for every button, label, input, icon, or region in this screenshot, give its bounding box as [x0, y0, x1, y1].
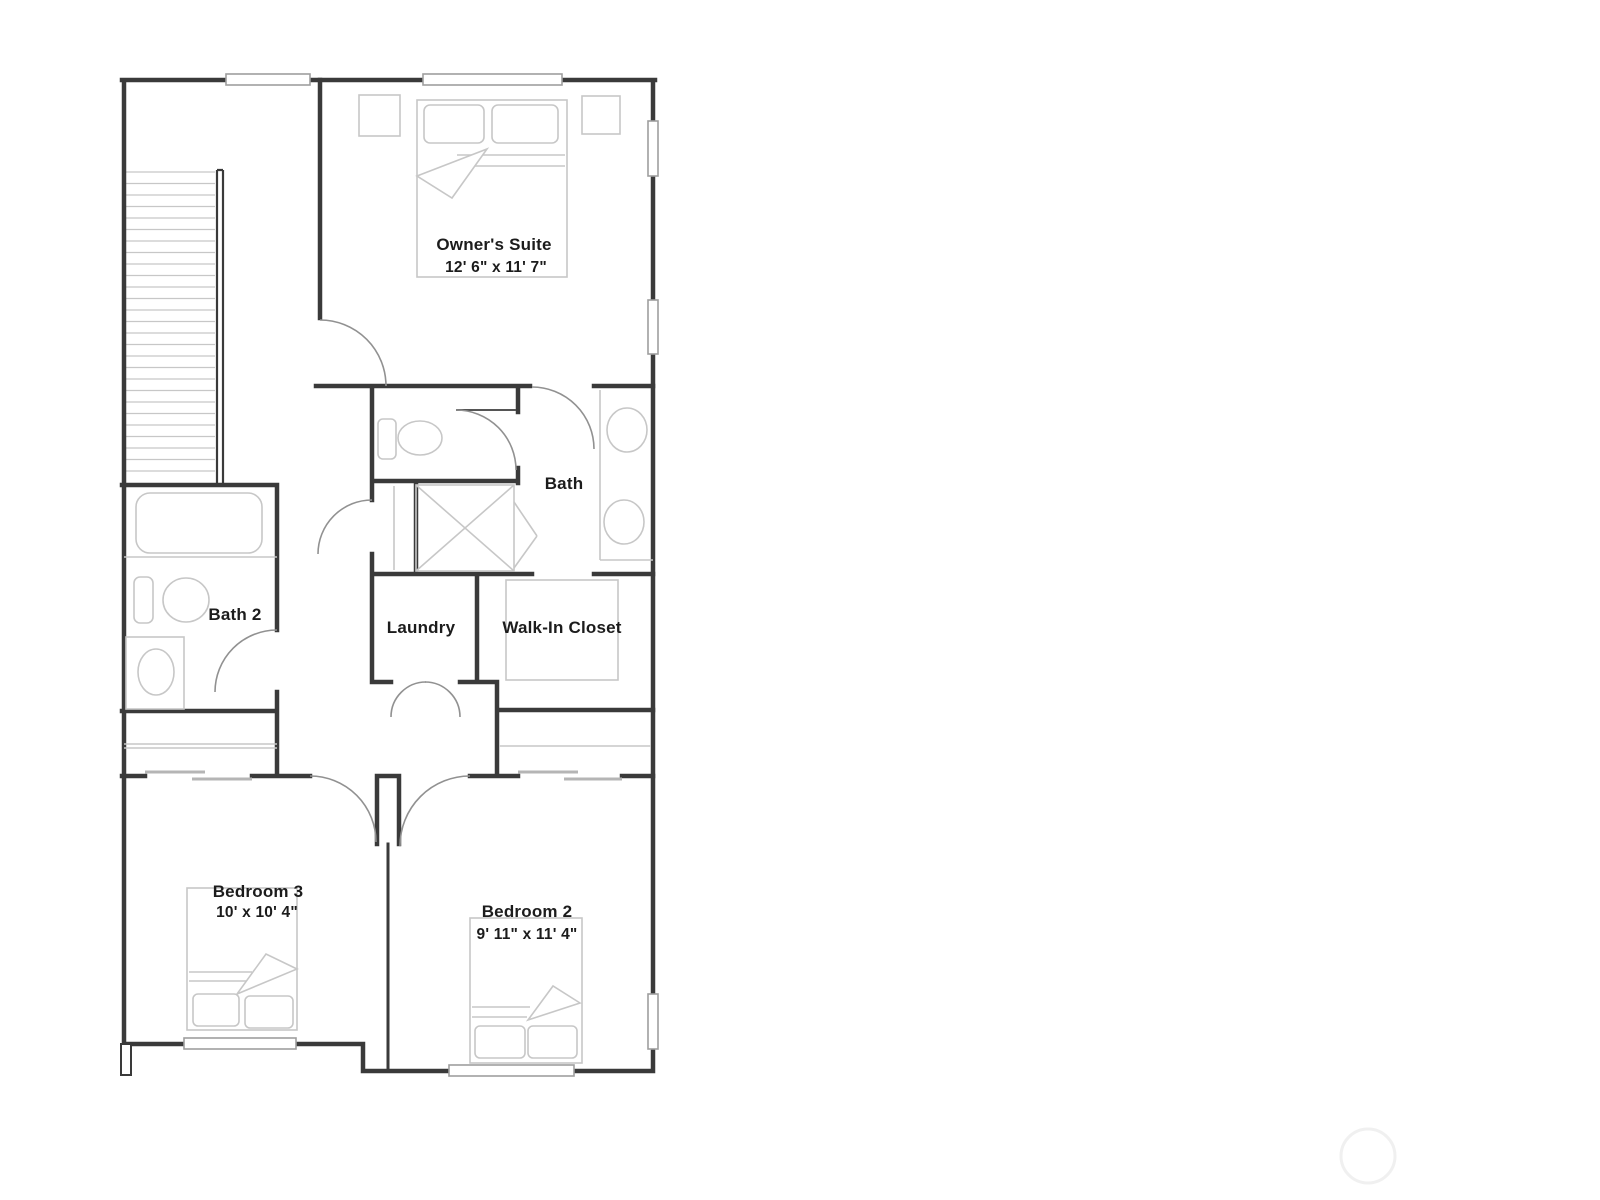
stairs: [126, 170, 223, 485]
bed-sheet-fold: [417, 149, 487, 198]
laundry-door-right-arc: [425, 682, 460, 717]
room-label-bedroom-3: Bedroom 3: [213, 882, 304, 901]
stair-treads: [126, 172, 215, 471]
room-dims-bedroom-3: 10' x 10' 4": [216, 904, 298, 921]
pillow: [492, 105, 558, 143]
sink-icon: [138, 649, 174, 695]
linen-closet-door-arc: [318, 500, 372, 554]
toilet-room-door-arc: [456, 410, 516, 470]
nightstand: [359, 95, 400, 136]
room-label-laundry: Laundry: [387, 618, 456, 637]
floor-plan: Owner's Suite 12' 6" x 11' 7" Bath Bath …: [0, 0, 1600, 1200]
shower-door: [514, 502, 537, 568]
bedroom-3-closet-sliding-doors: [145, 772, 252, 779]
pillow: [424, 105, 484, 143]
bed-sheet-lines: [472, 1007, 530, 1017]
bedroom-2-door-arc: [400, 776, 470, 846]
window: [423, 74, 562, 85]
room-label-bath: Bath: [545, 474, 584, 493]
nightstand: [582, 96, 620, 134]
pillow: [475, 1026, 525, 1058]
window: [449, 1065, 574, 1076]
bedroom-3-door-arc: [310, 776, 376, 842]
bed-sheet-fold: [528, 986, 580, 1020]
shower: [416, 485, 537, 571]
pillow: [245, 996, 293, 1028]
bed-sheet-fold: [237, 954, 297, 994]
room-label-bath-2: Bath 2: [208, 605, 261, 624]
watermark-circle: [1341, 1129, 1395, 1183]
pillow: [193, 994, 239, 1026]
wall-stub: [121, 1044, 131, 1075]
window: [226, 74, 310, 85]
bath-door-arc: [532, 387, 594, 449]
sink-icon: [607, 408, 647, 452]
room-label-owners-suite: Owner's Suite: [436, 235, 551, 254]
owners-suite-door-arc: [320, 320, 386, 386]
bedroom-3-closet-shelf: [124, 744, 277, 748]
bathtub-icon: [124, 493, 277, 557]
window: [648, 994, 658, 1049]
laundry-door-left-arc: [391, 682, 426, 717]
bath-2-door-arc: [215, 630, 277, 692]
stair-rail: [217, 170, 223, 485]
window: [648, 300, 658, 354]
pillow: [528, 1026, 577, 1058]
window: [648, 121, 658, 176]
window: [184, 1038, 296, 1049]
toilet-icon: [134, 577, 209, 623]
bed-sheet-lines: [189, 972, 252, 981]
room-label-walk-in-closet: Walk-In Closet: [502, 618, 621, 637]
sink-vanity: [126, 637, 184, 709]
room-dims-owners-suite: 12' 6" x 11' 7": [445, 259, 547, 276]
bedroom-2-closet-sliding-doors: [518, 772, 622, 779]
sink-icon: [604, 500, 644, 544]
room-dims-bedroom-2: 9' 11" x 11' 4": [477, 926, 578, 943]
toilet-icon: [378, 419, 442, 459]
floor-plan-page: Owner's Suite 12' 6" x 11' 7" Bath Bath …: [0, 0, 1600, 1200]
room-label-bedroom-2: Bedroom 2: [482, 902, 573, 921]
double-sink-vanity: [600, 390, 653, 560]
